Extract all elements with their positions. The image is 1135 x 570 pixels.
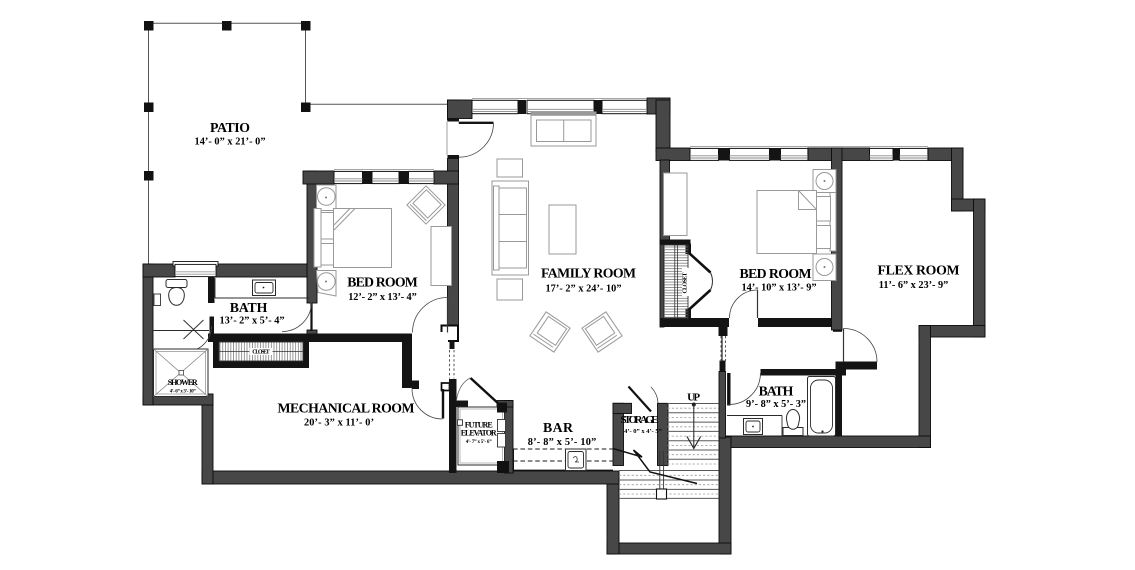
svg-text:ELEVATOR: ELEVATOR xyxy=(461,428,497,437)
svg-text:BED ROOM: BED ROOM xyxy=(740,266,812,281)
svg-text:PATIO: PATIO xyxy=(210,120,250,135)
svg-text:13’- 2” x 5’- 4”: 13’- 2” x 5’- 4” xyxy=(220,316,285,327)
svg-text:14’- 10” x 13’- 9”: 14’- 10” x 13’- 9” xyxy=(742,283,817,294)
svg-text:12’- 2” x 13’- 4”: 12’- 2” x 13’- 4” xyxy=(348,292,417,303)
svg-text:MECHANICAL ROOM: MECHANICAL ROOM xyxy=(278,401,415,416)
svg-text:17’- 2” x 24’- 10”: 17’- 2” x 24’- 10” xyxy=(546,284,622,295)
svg-text:4’- 0” x 4’- 5”: 4’- 0” x 4’- 5” xyxy=(624,428,662,435)
svg-text:BATH: BATH xyxy=(759,384,794,399)
svg-text:BAR: BAR xyxy=(543,420,574,435)
svg-text:FAMILY ROOM: FAMILY ROOM xyxy=(541,266,636,281)
svg-text:SHOWER: SHOWER xyxy=(168,378,198,387)
svg-text:4’- 6” x 3’- 10”: 4’- 6” x 3’- 10” xyxy=(170,389,197,394)
svg-text:BATH: BATH xyxy=(230,300,268,315)
svg-text:14’- 0” x 21’- 0”: 14’- 0” x 21’- 0” xyxy=(195,137,266,148)
svg-text:11’- 6” x 23’- 9”: 11’- 6” x 23’- 9” xyxy=(879,280,949,291)
svg-text:CLOSET: CLOSET xyxy=(683,273,689,294)
svg-text:CLOSET: CLOSET xyxy=(252,350,270,356)
svg-text:STORAGE: STORAGE xyxy=(621,414,659,426)
svg-text:FLEX ROOM: FLEX ROOM xyxy=(878,263,960,278)
svg-text:20’- 3” x 11’- 0’: 20’- 3” x 11’- 0’ xyxy=(304,418,374,429)
svg-text:8’- 8” x 5’- 10”: 8’- 8” x 5’- 10” xyxy=(528,437,597,448)
svg-text:9’- 8” x 5’- 3”: 9’- 8” x 5’- 3” xyxy=(746,399,806,410)
svg-text:BED ROOM: BED ROOM xyxy=(347,275,418,290)
svg-text:4’- 7” x 5’- 6”: 4’- 7” x 5’- 6” xyxy=(466,440,493,445)
svg-text:UP: UP xyxy=(687,392,700,404)
